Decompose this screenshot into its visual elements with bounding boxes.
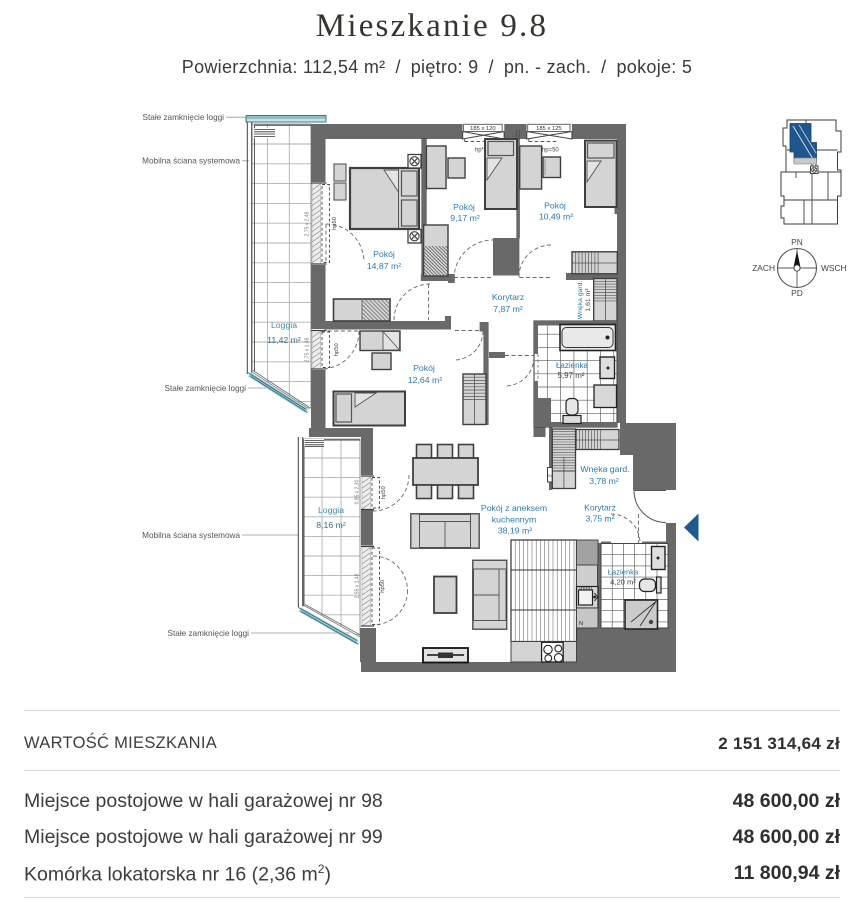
svg-text:hp50: hp50 — [332, 217, 338, 230]
svg-text:PN: PN — [791, 237, 803, 247]
svg-text:Loggia: Loggia — [271, 320, 297, 330]
svg-text:Stałe zamknięcie loggi: Stałe zamknięcie loggi — [165, 384, 247, 393]
svg-text:2,75 x 2,48: 2,75 x 2,48 — [305, 211, 311, 236]
svg-text:ZACH: ZACH — [752, 263, 775, 273]
svg-text:185 x 120: 185 x 120 — [470, 126, 495, 132]
svg-text:WSCH: WSCH — [821, 263, 847, 273]
svg-text:Stałe zamknięcie loggi: Stałe zamknięcie loggi — [143, 113, 225, 122]
svg-text:14,87 m²: 14,87 m² — [367, 261, 401, 271]
svg-text:11,42 m²: 11,42 m² — [267, 335, 301, 345]
svg-text:3,75 m²: 3,75 m² — [586, 514, 615, 524]
svg-text:12,64 m²: 12,64 m² — [408, 375, 442, 385]
svg-text:PD: PD — [791, 288, 803, 298]
svg-text:Wnęka gard.: Wnęka gard. — [577, 281, 584, 320]
svg-text:185 x 125: 185 x 125 — [536, 126, 561, 132]
svg-text:1,61 m²: 1,61 m² — [585, 288, 592, 312]
svg-text:Korytarz: Korytarz — [492, 292, 524, 302]
svg-text:Stałe zamknięcie loggi: Stałe zamknięcie loggi — [168, 629, 250, 638]
svg-text:hp50: hp50 — [334, 343, 340, 356]
svg-text:Pokój: Pokój — [373, 249, 395, 259]
svg-text:Korytarz: Korytarz — [584, 503, 616, 513]
svg-text:Wnęka gard.: Wnęka gard. — [580, 464, 629, 474]
svg-text:Łazienka: Łazienka — [556, 361, 589, 370]
svg-text:38,19 m²: 38,19 m² — [498, 526, 532, 536]
svg-text:Loggia: Loggia — [318, 505, 344, 515]
svg-text:hp50: hp50 — [380, 580, 386, 593]
svg-text:hp=50: hp=50 — [542, 148, 560, 154]
svg-text:8,16 m²: 8,16 m² — [316, 520, 346, 530]
svg-text:Mobilna ściana systemowa: Mobilna ściana systemowa — [142, 157, 240, 166]
svg-text:3,78 m²: 3,78 m² — [589, 476, 619, 486]
svg-text:N: N — [579, 621, 583, 627]
svg-text:7,87 m²: 7,87 m² — [493, 304, 523, 314]
svg-text:Pokój: Pokój — [544, 201, 566, 211]
svg-text:Pokój: Pokój — [453, 202, 475, 212]
svg-text:hp50: hp50 — [381, 486, 387, 499]
svg-text:kuchennym: kuchennym — [492, 515, 536, 525]
svg-text:2,75 x 1,48: 2,75 x 1,48 — [305, 337, 311, 362]
svg-text:4,20 m²: 4,20 m² — [610, 578, 636, 587]
svg-text:Pokój z aneksem: Pokój z aneksem — [481, 503, 547, 513]
svg-text:9,17 m²: 9,17 m² — [450, 213, 480, 223]
svg-text:0,95 x 2,30: 0,95 x 2,30 — [355, 479, 361, 504]
svg-text:Pokój: Pokój — [413, 363, 435, 373]
svg-text:10,49 m²: 10,49 m² — [539, 212, 573, 222]
svg-text:2,55 x 1,48: 2,55 x 1,48 — [355, 573, 361, 598]
svg-text:5,97 m²: 5,97 m² — [557, 371, 584, 380]
svg-text:Mobilna ściana systemowa: Mobilna ściana systemowa — [142, 531, 240, 540]
svg-text:Łazienka: Łazienka — [608, 568, 639, 577]
